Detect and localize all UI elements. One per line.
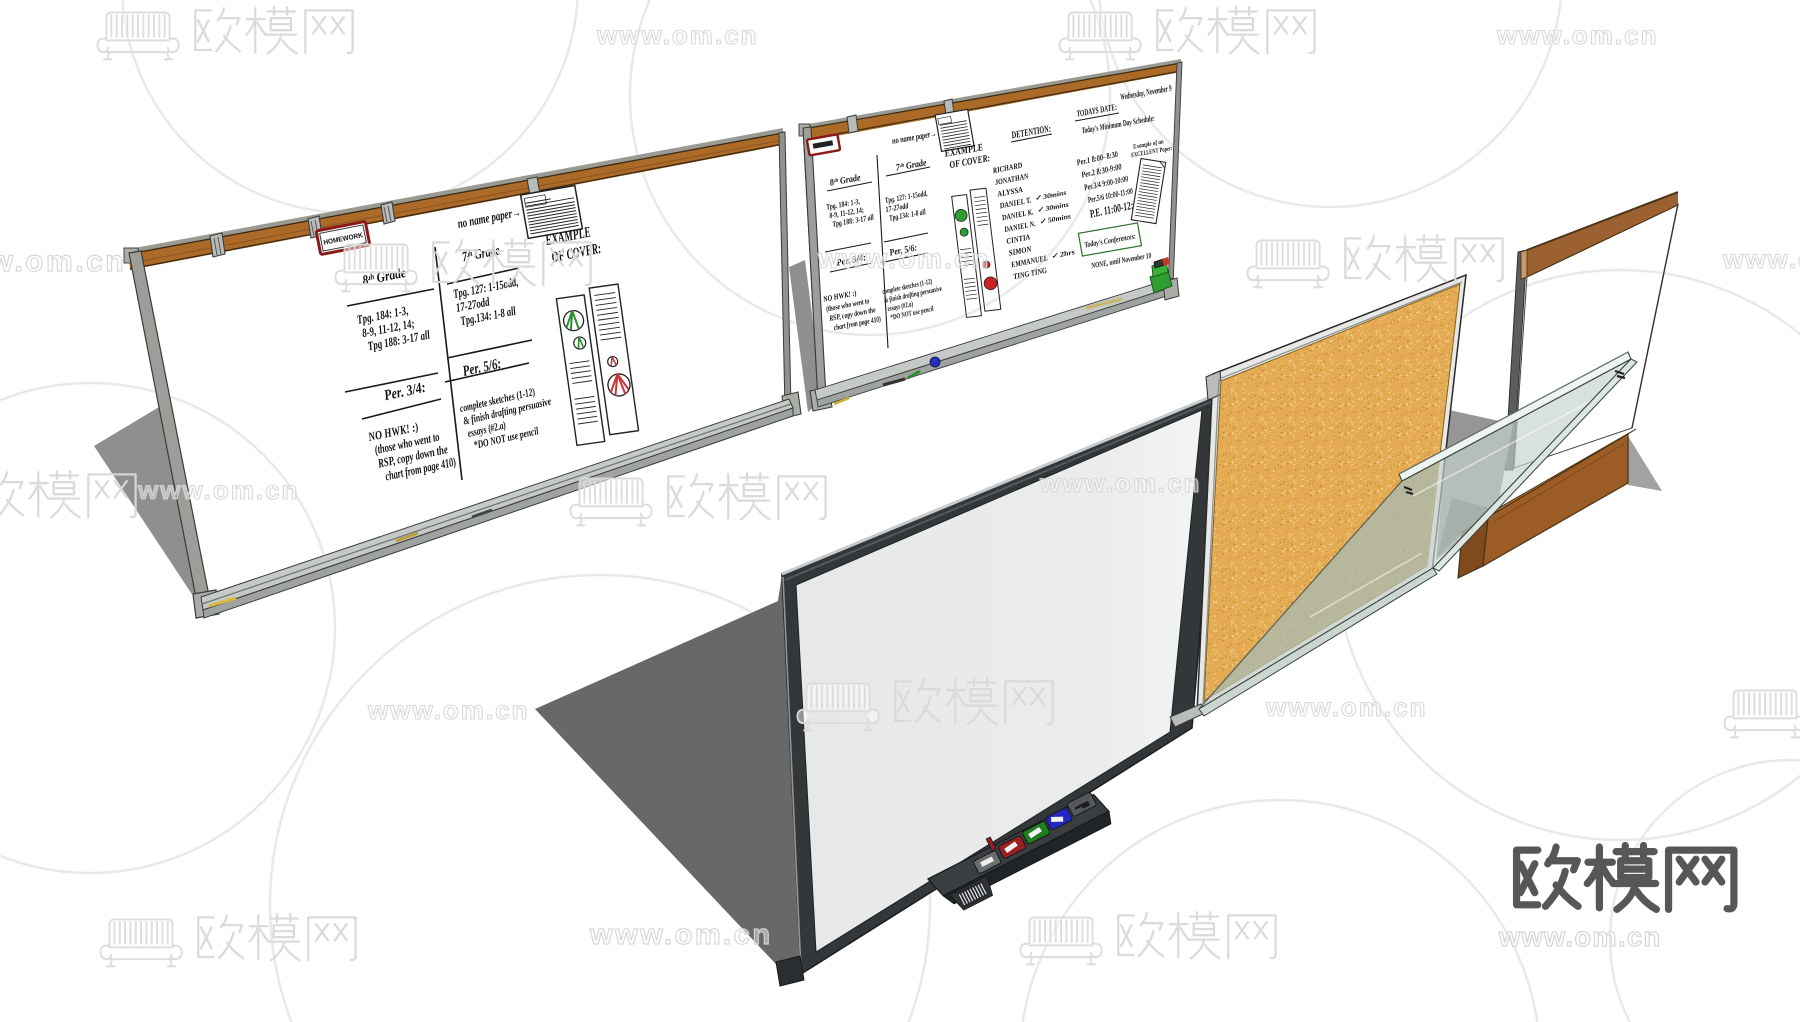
svg-text:www.om.cn: www.om.cn — [1496, 20, 1659, 50]
svg-text:www.om.cn: www.om.cn — [589, 919, 773, 951]
svg-text:www.om.cn: www.om.cn — [1498, 922, 1662, 952]
svg-text:www.om.cn: www.om.cn — [0, 245, 126, 278]
svg-text:www.om.cn: www.om.cn — [137, 475, 300, 505]
svg-text:www.om.cn: www.om.cn — [817, 243, 991, 274]
svg-text:www.om.cn: www.om.cn — [1039, 468, 1202, 498]
svg-text:www.om.cn: www.om.cn — [1265, 692, 1428, 722]
svg-text:www.om.cn: www.om.cn — [1722, 244, 1800, 274]
svg-text:www.om.cn: www.om.cn — [367, 695, 530, 725]
svg-text:www.om.cn: www.om.cn — [596, 20, 759, 50]
